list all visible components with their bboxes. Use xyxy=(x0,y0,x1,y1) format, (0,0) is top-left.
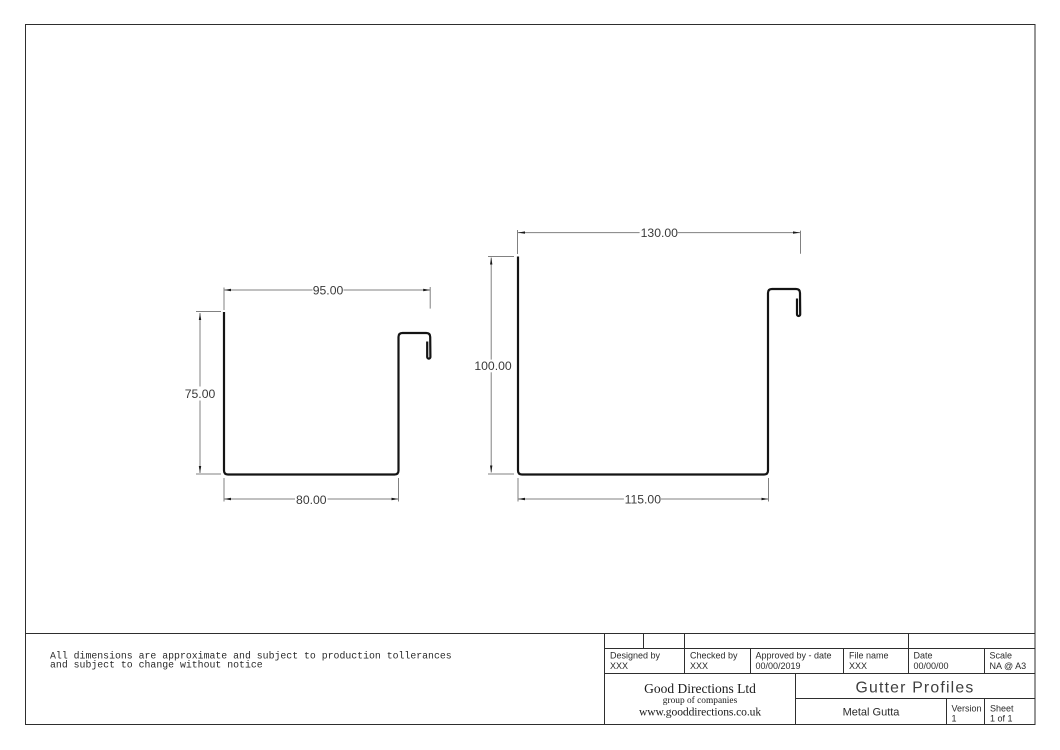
svg-text:95.00: 95.00 xyxy=(313,283,344,297)
svg-text:Date: Date xyxy=(914,651,933,661)
svg-text:and subject to change without: and subject to change without notice xyxy=(50,659,263,670)
svg-text:Designed by: Designed by xyxy=(610,651,661,661)
svg-text:80.00: 80.00 xyxy=(296,493,327,507)
svg-text:XXX: XXX xyxy=(690,661,708,671)
svg-text:Metal Gutta: Metal Gutta xyxy=(843,707,901,719)
svg-text:Approved by - date: Approved by - date xyxy=(756,651,832,661)
svg-text:1: 1 xyxy=(952,714,957,724)
svg-text:115.00: 115.00 xyxy=(625,493,662,507)
svg-text:Sheet: Sheet xyxy=(990,704,1014,714)
svg-text:75.00: 75.00 xyxy=(185,387,216,401)
svg-text:File name: File name xyxy=(849,651,889,661)
svg-text:1 of 1: 1 of 1 xyxy=(990,714,1013,724)
svg-text:Good Directions Ltd: Good Directions Ltd xyxy=(644,681,756,696)
svg-text:Version: Version xyxy=(952,704,982,714)
svg-text:www.gooddirections.co.uk: www.gooddirections.co.uk xyxy=(639,706,761,719)
svg-text:00/00/00: 00/00/00 xyxy=(914,661,949,671)
svg-text:Gutter Profiles: Gutter Profiles xyxy=(856,680,975,697)
svg-text:Checked by: Checked by xyxy=(690,651,738,661)
svg-text:XXX: XXX xyxy=(610,661,628,671)
svg-text:100.00: 100.00 xyxy=(474,359,511,373)
svg-text:group of companies: group of companies xyxy=(663,695,738,706)
svg-text:130.00: 130.00 xyxy=(641,226,678,240)
svg-text:Scale: Scale xyxy=(990,651,1013,661)
svg-text:00/00/2019: 00/00/2019 xyxy=(756,661,801,671)
svg-text:NA @ A3: NA @ A3 xyxy=(990,661,1027,671)
svg-text:XXX: XXX xyxy=(849,661,867,671)
